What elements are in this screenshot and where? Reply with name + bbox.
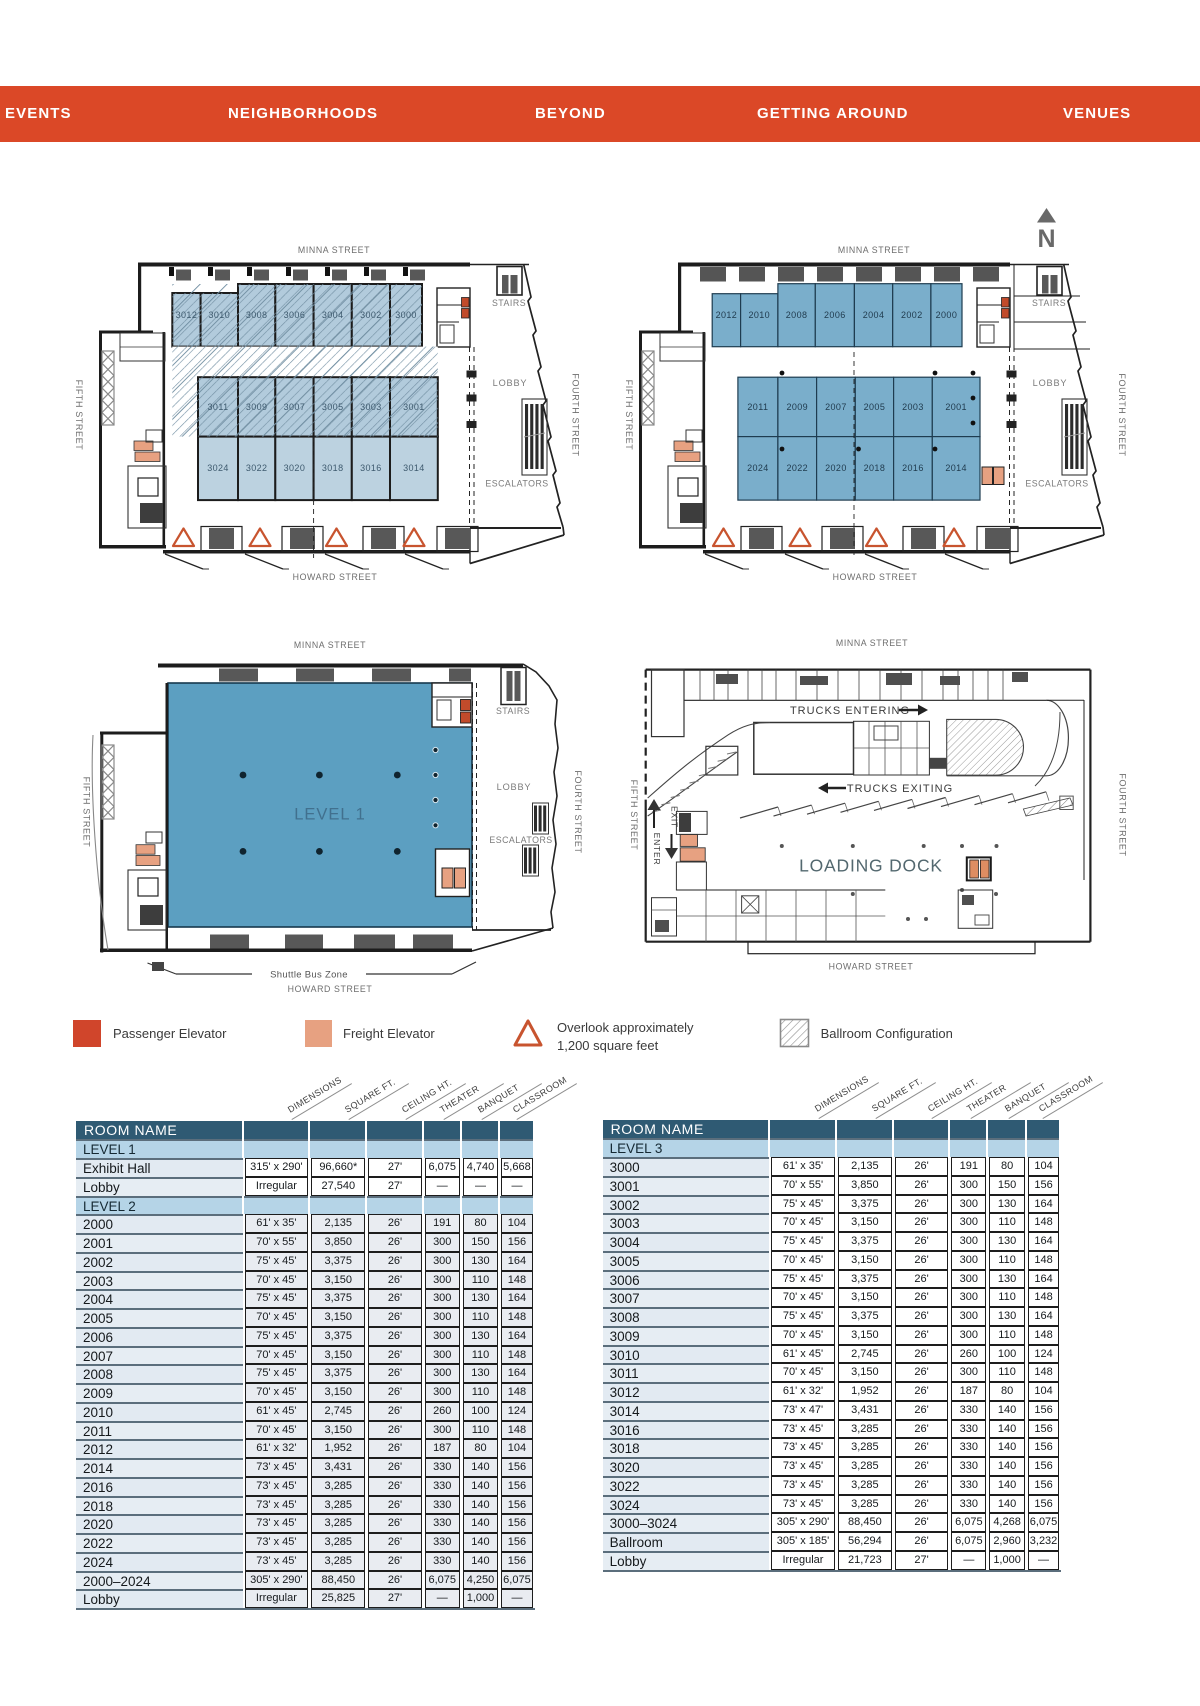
- svg-text:MINNA STREET: MINNA STREET: [298, 245, 370, 255]
- svg-text:3016: 3016: [360, 463, 382, 473]
- svg-text:FIFTH STREET: FIFTH STREET: [74, 380, 84, 451]
- svg-text:TRUCKS ENTERING: TRUCKS ENTERING: [790, 705, 910, 717]
- svg-text:FIFTH STREET: FIFTH STREET: [629, 780, 639, 851]
- svg-text:LOBBY: LOBBY: [493, 378, 528, 388]
- svg-text:LEVEL 1: LEVEL 1: [294, 806, 366, 824]
- svg-text:HOWARD STREET: HOWARD STREET: [833, 572, 918, 582]
- svg-text:3024: 3024: [207, 463, 229, 473]
- svg-text:3010: 3010: [208, 310, 230, 320]
- svg-text:3001: 3001: [403, 402, 425, 412]
- svg-text:LOADING DOCK: LOADING DOCK: [799, 856, 943, 876]
- svg-text:3006: 3006: [284, 310, 306, 320]
- svg-text:LOBBY: LOBBY: [497, 782, 532, 792]
- svg-text:N: N: [1037, 225, 1055, 253]
- svg-text:2012: 2012: [716, 310, 738, 320]
- svg-text:3004: 3004: [322, 310, 344, 320]
- svg-text:3008: 3008: [246, 310, 268, 320]
- svg-text:2004: 2004: [863, 310, 885, 320]
- svg-text:LOBBY: LOBBY: [1033, 378, 1068, 388]
- svg-text:FOURTH STREET: FOURTH STREET: [1117, 373, 1127, 456]
- svg-text:HOWARD STREET: HOWARD STREET: [829, 962, 914, 972]
- svg-text:TRUCKS EXITING: TRUCKS EXITING: [847, 783, 953, 795]
- svg-text:2010: 2010: [748, 310, 770, 320]
- svg-text:2005: 2005: [864, 402, 886, 412]
- svg-text:3022: 3022: [246, 463, 268, 473]
- svg-text:2006: 2006: [824, 310, 846, 320]
- svg-text:2002: 2002: [901, 310, 923, 320]
- svg-text:STAIRS: STAIRS: [1032, 298, 1066, 308]
- svg-text:2009: 2009: [786, 402, 808, 412]
- svg-text:2000: 2000: [936, 310, 958, 320]
- svg-text:3005: 3005: [322, 402, 344, 412]
- svg-text:2007: 2007: [825, 402, 847, 412]
- svg-text:3012: 3012: [176, 310, 198, 320]
- svg-text:FIFTH STREET: FIFTH STREET: [82, 777, 92, 848]
- svg-text:2011: 2011: [747, 402, 768, 412]
- svg-text:Shuttle Bus Zone: Shuttle Bus Zone: [270, 970, 348, 981]
- svg-text:3003: 3003: [360, 402, 382, 412]
- svg-text:ESCALATORS: ESCALATORS: [489, 835, 552, 845]
- svg-text:2024: 2024: [747, 463, 769, 473]
- svg-text:ESCALATORS: ESCALATORS: [485, 479, 548, 489]
- svg-text:3009: 3009: [246, 402, 268, 412]
- svg-text:HOWARD STREET: HOWARD STREET: [293, 572, 378, 582]
- svg-text:2003: 2003: [902, 402, 924, 412]
- svg-text:2014: 2014: [945, 463, 967, 473]
- svg-text:3014: 3014: [403, 463, 425, 473]
- svg-text:EXIT: EXIT: [670, 806, 680, 828]
- svg-text:2001: 2001: [945, 402, 967, 412]
- svg-text:3020: 3020: [284, 463, 306, 473]
- svg-text:2020: 2020: [825, 463, 847, 473]
- svg-text:STAIRS: STAIRS: [492, 298, 526, 308]
- svg-text:ENTER: ENTER: [652, 833, 662, 866]
- svg-text:FOURTH STREET: FOURTH STREET: [573, 770, 583, 853]
- svg-text:2008: 2008: [786, 310, 808, 320]
- svg-text:3002: 3002: [360, 310, 382, 320]
- svg-text:2016: 2016: [902, 463, 924, 473]
- svg-text:FIFTH STREET: FIFTH STREET: [624, 380, 634, 451]
- svg-text:STAIRS: STAIRS: [496, 706, 530, 716]
- svg-text:FOURTH STREET: FOURTH STREET: [571, 373, 581, 456]
- svg-text:3000: 3000: [395, 310, 417, 320]
- svg-text:HOWARD STREET: HOWARD STREET: [288, 984, 373, 994]
- svg-text:2018: 2018: [864, 463, 886, 473]
- svg-text:3018: 3018: [322, 463, 344, 473]
- svg-text:3007: 3007: [284, 402, 306, 412]
- svg-text:3011: 3011: [208, 402, 229, 412]
- svg-text:MINNA STREET: MINNA STREET: [838, 245, 910, 255]
- svg-text:2022: 2022: [786, 463, 808, 473]
- svg-text:FOURTH STREET: FOURTH STREET: [1118, 773, 1128, 856]
- svg-text:MINNA STREET: MINNA STREET: [294, 640, 366, 650]
- svg-text:ESCALATORS: ESCALATORS: [1025, 479, 1088, 489]
- svg-text:MINNA STREET: MINNA STREET: [836, 638, 908, 648]
